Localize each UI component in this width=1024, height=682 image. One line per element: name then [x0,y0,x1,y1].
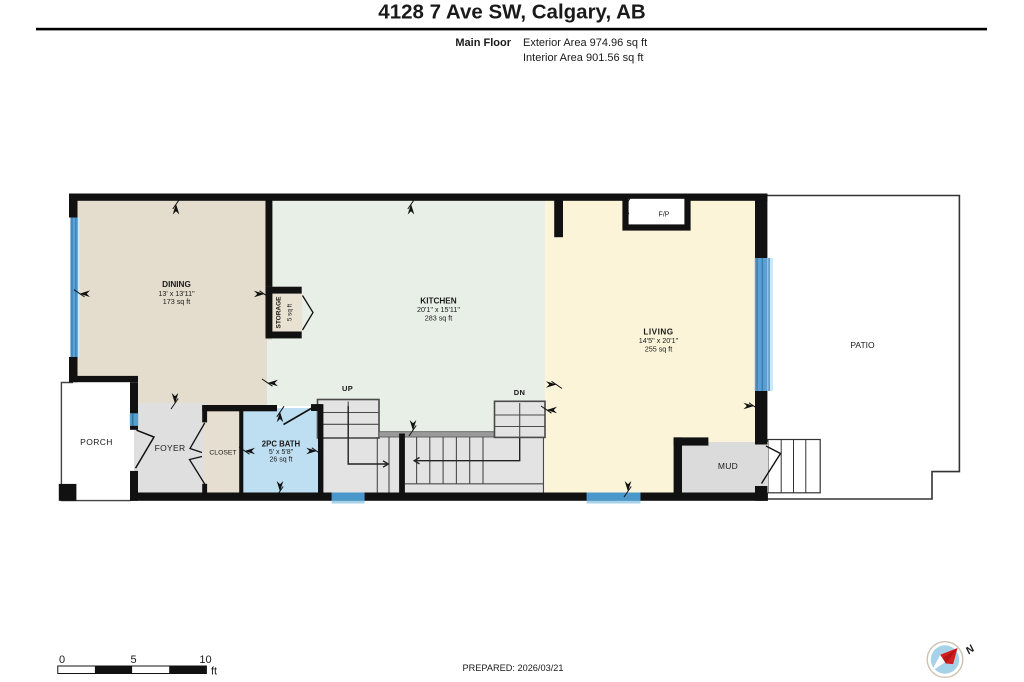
svg-text:10: 10 [199,654,211,666]
svg-text:F/P: F/P [659,212,670,219]
svg-text:Main Floor: Main Floor [455,37,511,49]
svg-text:STORAGE: STORAGE [276,296,283,329]
svg-text:DINING: DINING [162,280,191,289]
svg-text:CLOSET: CLOSET [209,450,236,457]
svg-text:2PC BATH: 2PC BATH [262,440,301,449]
svg-text:0: 0 [59,654,65,666]
svg-text:PATIO: PATIO [850,340,875,350]
svg-text:283 sq ft: 283 sq ft [425,313,453,322]
svg-text:173 sq ft: 173 sq ft [163,297,191,306]
svg-text:PORCH: PORCH [80,437,113,447]
svg-text:Exterior Area 974.96 sq ft: Exterior Area 974.96 sq ft [523,37,647,49]
svg-text:255 sq ft: 255 sq ft [645,344,673,353]
svg-text:ft: ft [211,666,217,678]
svg-text:PREPARED: 2026/03/21: PREPARED: 2026/03/21 [463,663,564,673]
svg-text:5 sq ft: 5 sq ft [287,304,294,321]
svg-text:5: 5 [130,654,136,666]
svg-text:5' x 5'8": 5' x 5'8" [269,449,294,456]
svg-text:FOYER: FOYER [155,443,186,453]
svg-text:UP: UP [342,384,353,393]
svg-text:4128 7 Ave SW, Calgary, AB: 4128 7 Ave SW, Calgary, AB [378,1,645,24]
svg-text:DN: DN [514,388,525,397]
svg-text:MUD: MUD [718,461,738,471]
svg-text:26 sq ft: 26 sq ft [270,456,293,463]
svg-text:Interior Area 901.56 sq ft: Interior Area 901.56 sq ft [523,52,643,64]
